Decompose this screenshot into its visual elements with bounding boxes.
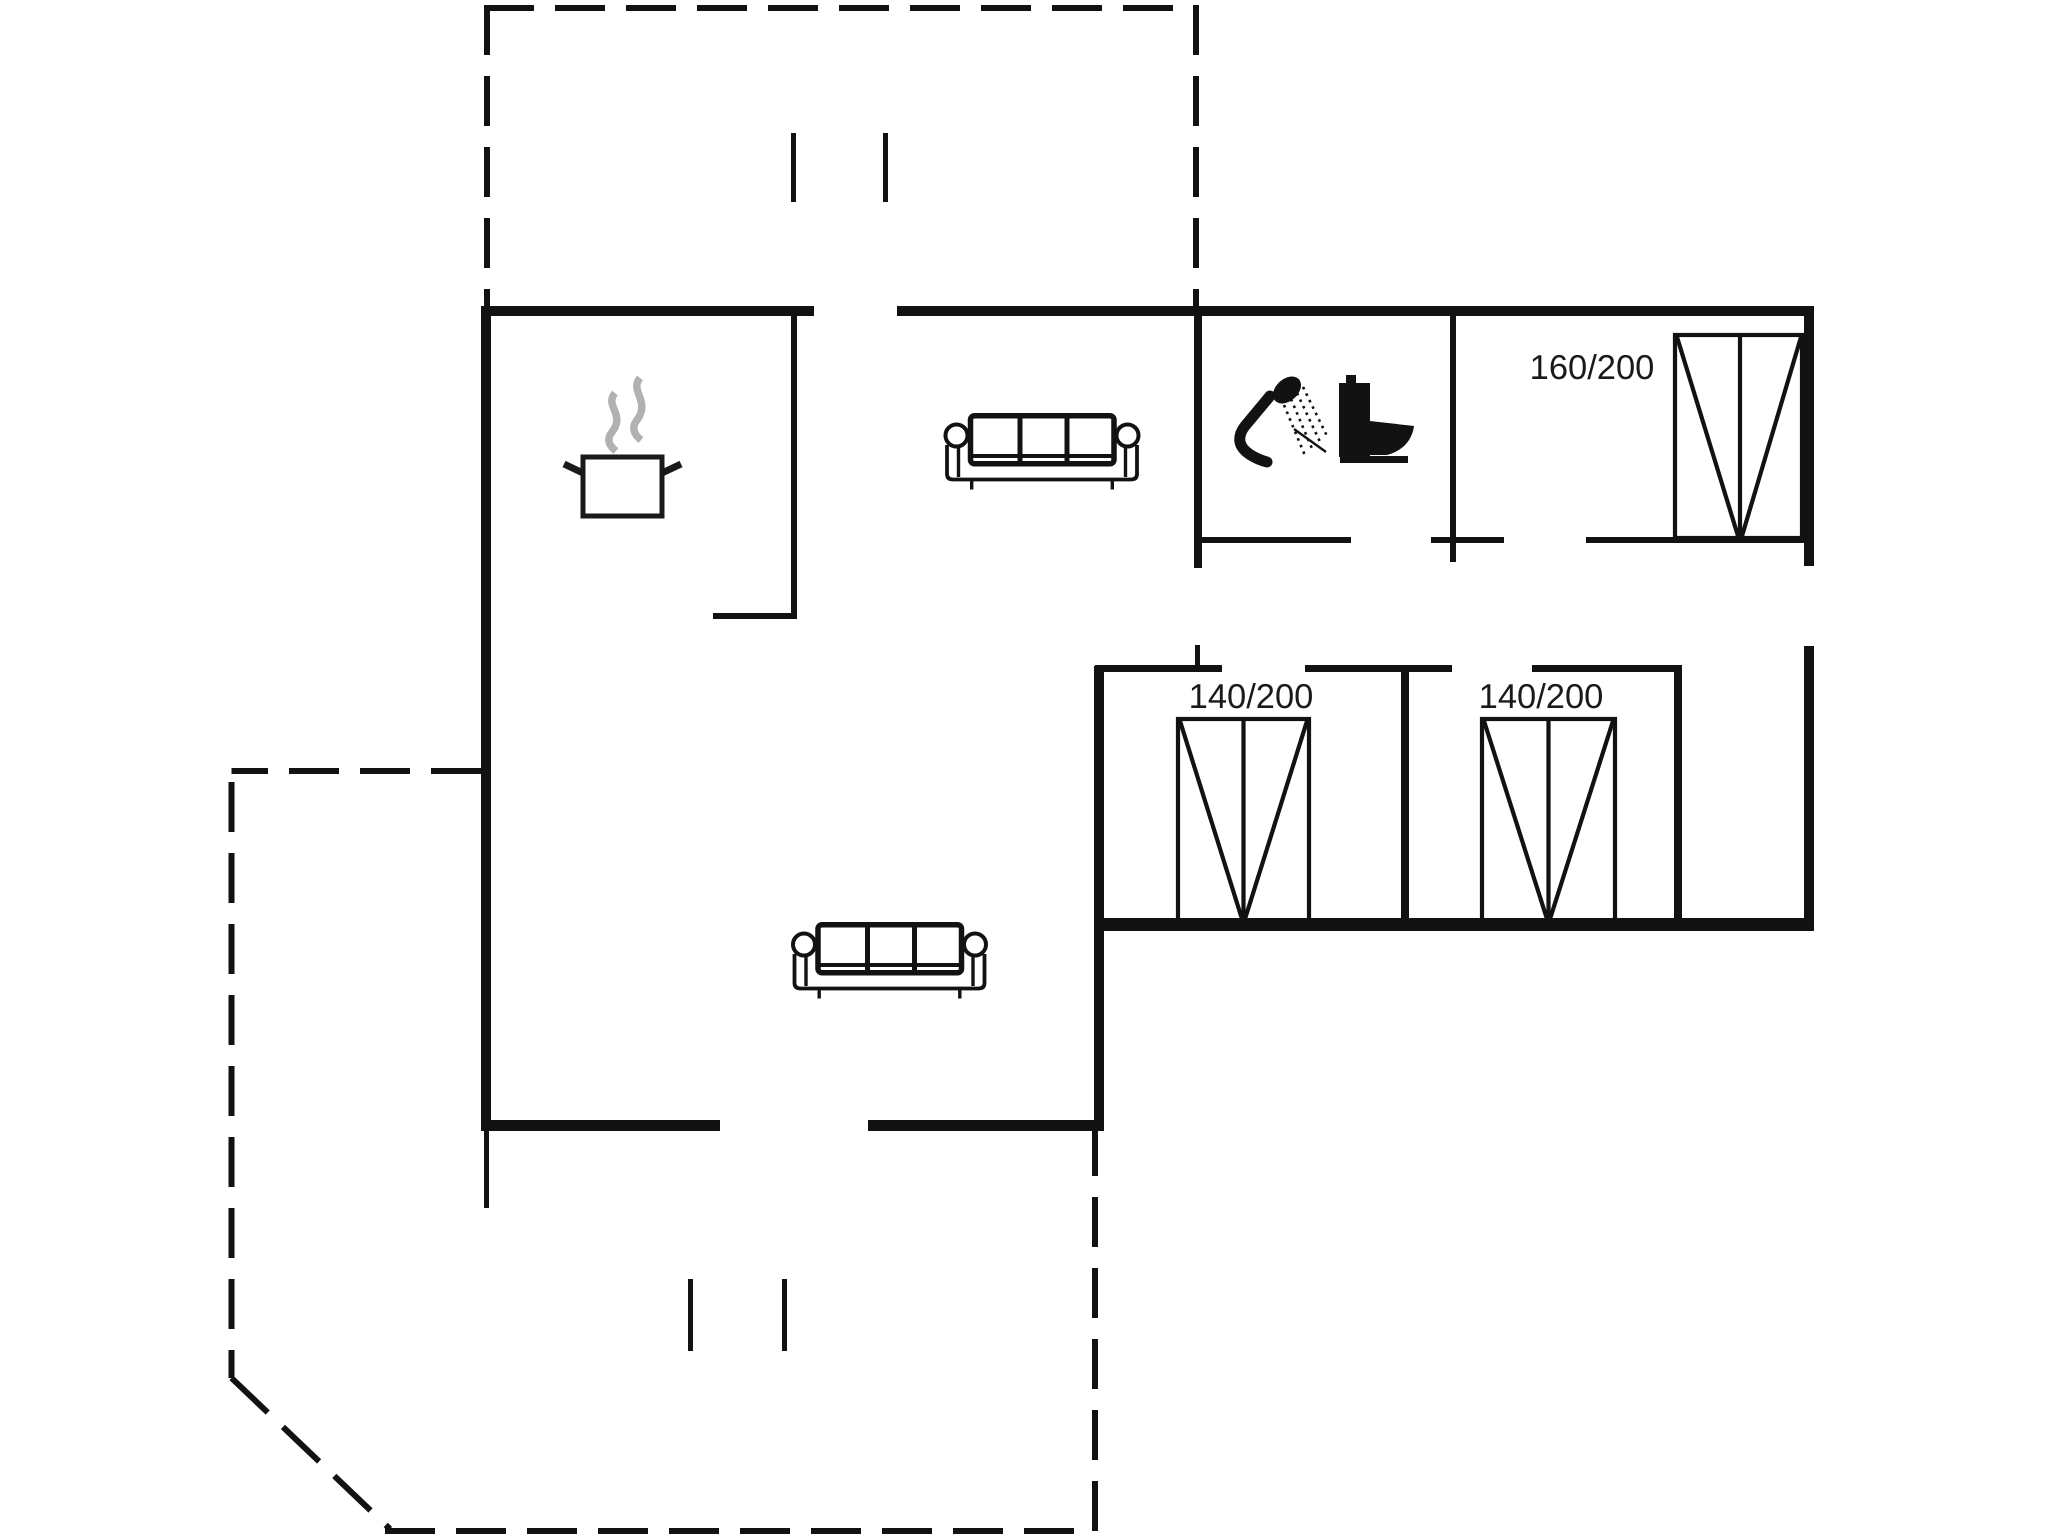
svg-text:140/200: 140/200 — [1189, 678, 1314, 716]
svg-text:160/200: 160/200 — [1530, 349, 1655, 387]
svg-text:140/200: 140/200 — [1479, 678, 1604, 716]
